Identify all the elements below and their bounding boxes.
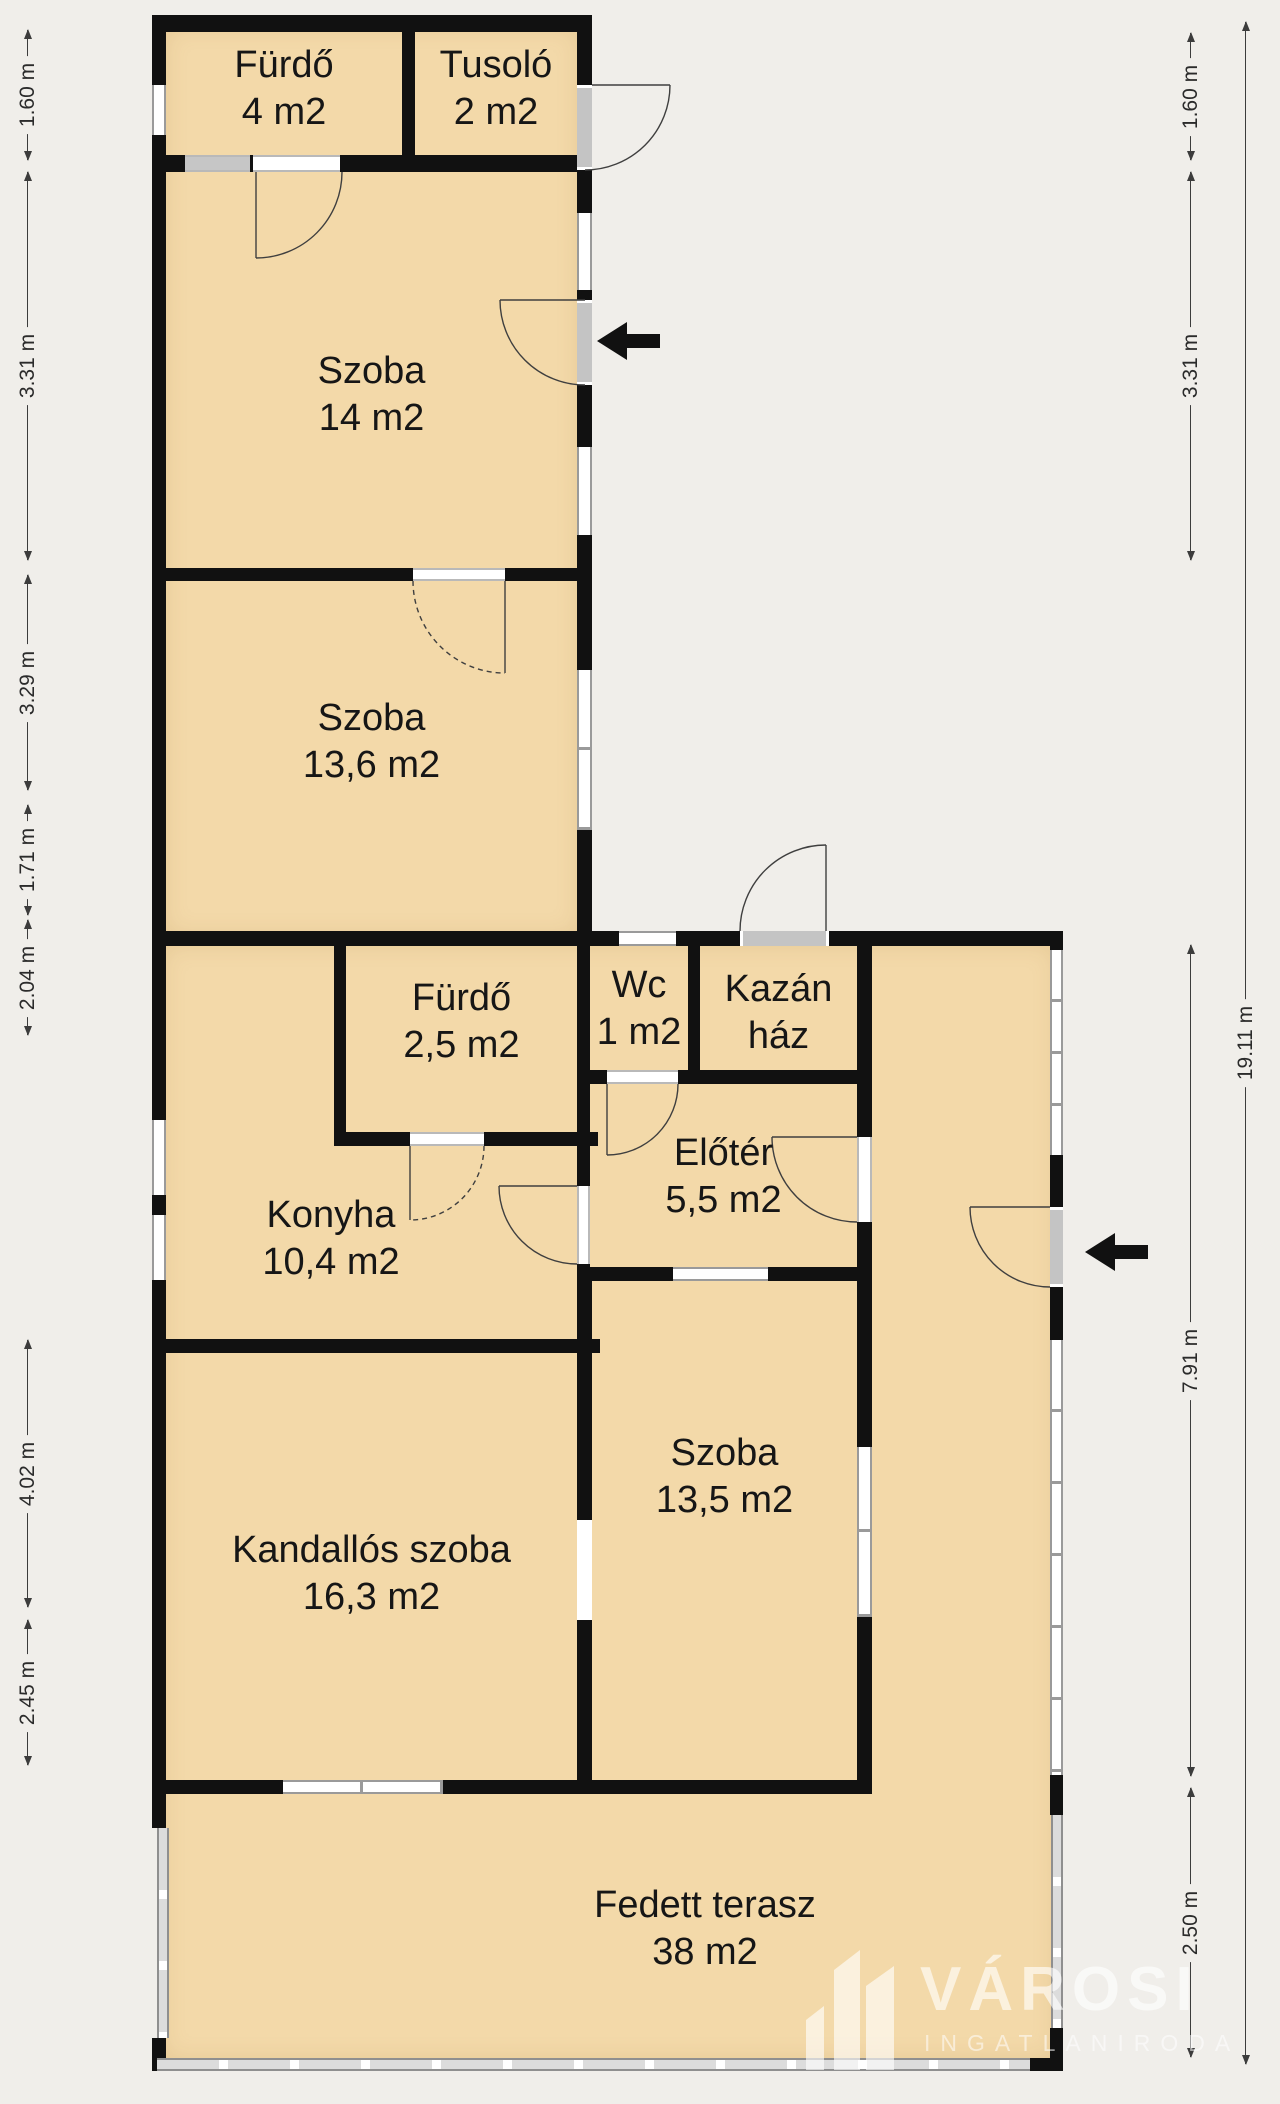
- dim-right-3-31: 3.31 m: [1190, 172, 1191, 560]
- room-name: Kandallós szoba: [166, 1527, 577, 1574]
- dim-right-1-60: 1.60 m: [1190, 33, 1191, 160]
- room-name: Szoba: [592, 1430, 857, 1477]
- watermark-subtitle: INGATLANIRODA: [924, 2030, 1240, 2057]
- dim-left-4-02: 4.02 m: [27, 1340, 28, 1607]
- dim-left-1-71: 1.71 m: [27, 805, 28, 915]
- room-name: Előtér: [590, 1130, 857, 1177]
- watermark-brand: VÁROSI: [920, 1954, 1200, 2025]
- room-area: 10,4 m2: [166, 1239, 496, 1286]
- room-label-konyha: Konyha 10,4 m2: [166, 1192, 496, 1286]
- dim-left-1-60: 1.60 m: [27, 30, 28, 160]
- dim-left-2-04: 2.04 m: [27, 920, 28, 1035]
- room-label-tusolo: Tusoló 2 m2: [415, 42, 577, 136]
- dim-left-3-31: 3.31 m: [27, 172, 28, 560]
- room-area: 13,6 m2: [166, 742, 577, 789]
- room-label-eloter: Előtér 5,5 m2: [590, 1130, 857, 1224]
- room-area: 1 m2: [578, 1009, 700, 1056]
- room-label-wc: Wc 1 m2: [578, 962, 700, 1056]
- room-name: Fürdő: [346, 975, 577, 1022]
- dim-left-3-29: 3.29 m: [27, 575, 28, 790]
- room-area: ház: [700, 1013, 857, 1060]
- dim-right-19-11: 19.11 m: [1245, 22, 1246, 2064]
- room-label-szoba-13-5: Szoba 13,5 m2: [592, 1430, 857, 1524]
- room-label-kazan-haz: Kazán ház: [700, 966, 857, 1060]
- dim-left-2-45: 2.45 m: [27, 1620, 28, 1765]
- room-label-furdo-2-5: Fürdő 2,5 m2: [346, 975, 577, 1069]
- room-name: Wc: [578, 962, 700, 1009]
- room-name: Tusoló: [415, 42, 577, 89]
- room-label-szoba-13-6: Szoba 13,6 m2: [166, 695, 577, 789]
- floor-plan-page: { "plan": { "type": "residential-floor-p…: [0, 0, 1280, 2104]
- room-name: Kazán: [700, 966, 857, 1013]
- room-label-kandallos-szoba: Kandallós szoba 16,3 m2: [166, 1527, 577, 1621]
- room-area: 4 m2: [166, 89, 402, 136]
- room-name: Fedett terasz: [300, 1882, 1110, 1929]
- watermark: VÁROSI INGATLANIRODA: [782, 1932, 1252, 2072]
- room-label-furdo-4: Fürdő 4 m2: [166, 42, 402, 136]
- varosi-logo-icon: [800, 1938, 910, 2072]
- entrance-arrow-icon-lower: [1085, 1233, 1148, 1271]
- room-area: 5,5 m2: [590, 1177, 857, 1224]
- entrance-arrow-icon-upper: [597, 322, 660, 360]
- room-name: Konyha: [166, 1192, 496, 1239]
- room-name: Fürdő: [166, 42, 402, 89]
- room-area: 13,5 m2: [592, 1477, 857, 1524]
- room-area: 16,3 m2: [166, 1574, 577, 1621]
- room-label-szoba-14: Szoba 14 m2: [166, 348, 577, 442]
- room-area: 2,5 m2: [346, 1022, 577, 1069]
- dim-right-7-91: 7.91 m: [1190, 945, 1191, 1776]
- room-area: 2 m2: [415, 89, 577, 136]
- room-area: 14 m2: [166, 395, 577, 442]
- room-name: Szoba: [166, 348, 577, 395]
- room-name: Szoba: [166, 695, 577, 742]
